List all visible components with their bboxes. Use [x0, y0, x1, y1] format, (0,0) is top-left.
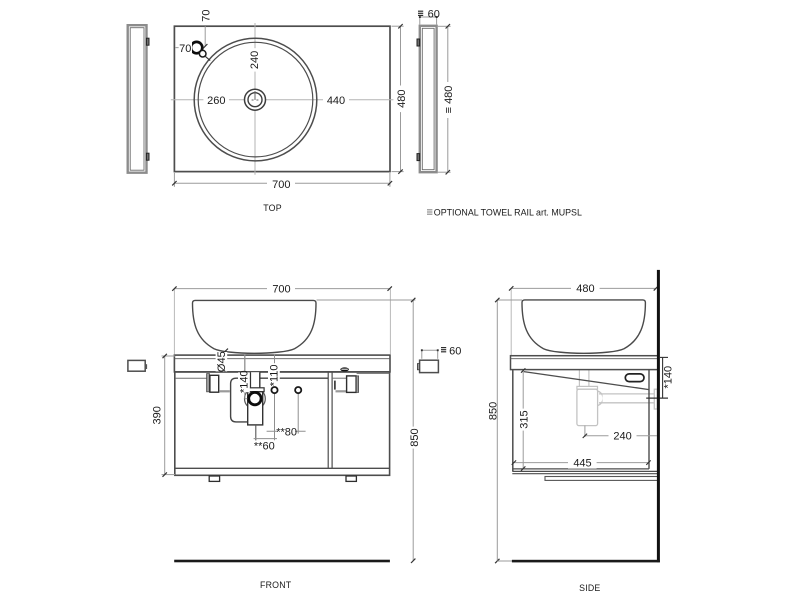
svg-text:440: 440	[327, 95, 345, 107]
svg-text:480: 480	[576, 283, 594, 295]
svg-text:**80: **80	[276, 426, 297, 438]
svg-text:SIDE: SIDE	[579, 583, 600, 593]
svg-text:390: 390	[152, 406, 164, 424]
svg-text:850: 850	[488, 402, 500, 420]
svg-text:**60: **60	[254, 440, 275, 452]
svg-text:60: 60	[449, 345, 461, 357]
svg-text:OPTIONAL TOWEL RAIL art. MUPSL: OPTIONAL TOWEL RAIL art. MUPSL	[434, 207, 582, 217]
svg-text:70: 70	[201, 9, 213, 21]
svg-text:445: 445	[573, 457, 591, 469]
svg-text:480: 480	[396, 90, 408, 108]
svg-text:Ø45: Ø45	[216, 351, 228, 372]
svg-text:*110: *110	[268, 364, 280, 386]
svg-text:315: 315	[519, 410, 531, 428]
svg-text:*140: *140	[239, 370, 251, 393]
svg-text:700: 700	[272, 283, 290, 295]
svg-text:*140: *140	[663, 366, 675, 389]
svg-text:≡ 480: ≡ 480	[443, 86, 455, 114]
svg-text:TOP: TOP	[263, 203, 282, 213]
svg-text:260: 260	[207, 95, 225, 107]
svg-text:700: 700	[272, 179, 290, 191]
svg-text:240: 240	[249, 51, 261, 69]
svg-text:70: 70	[179, 43, 191, 55]
svg-text:240: 240	[613, 431, 631, 443]
svg-text:FRONT: FRONT	[260, 580, 292, 590]
svg-text:60: 60	[428, 8, 440, 20]
svg-text:850: 850	[409, 428, 421, 446]
